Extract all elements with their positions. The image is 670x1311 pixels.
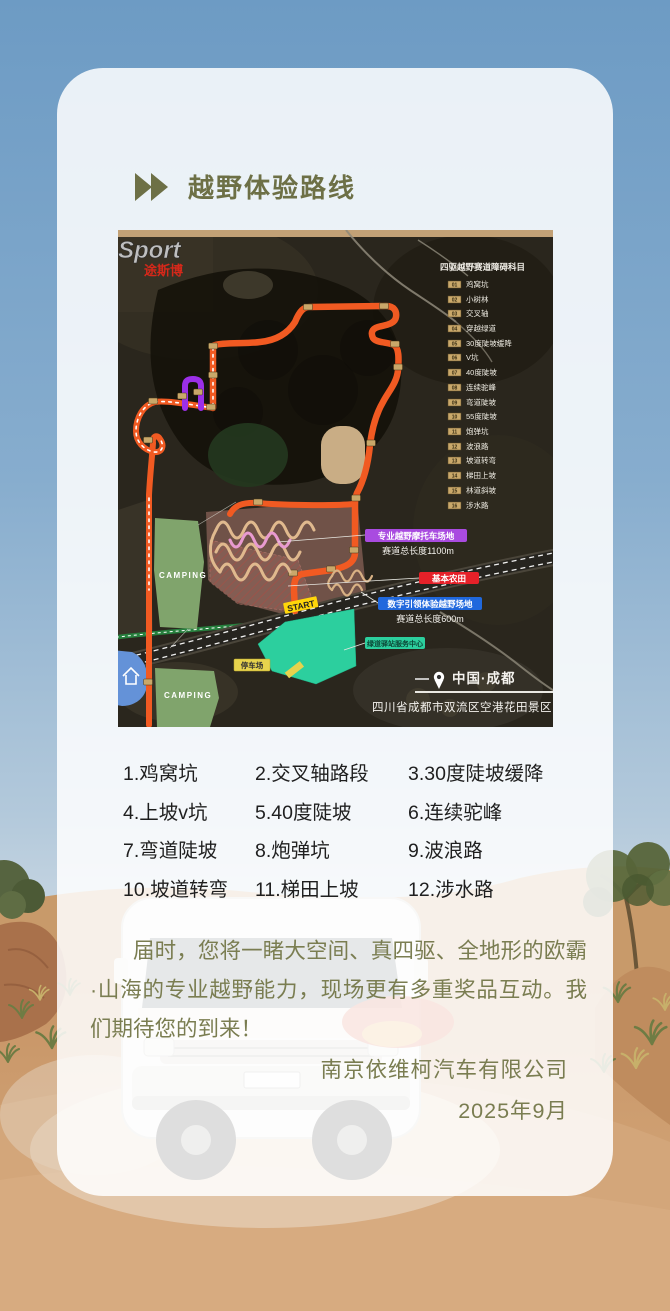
list-item: 2.交叉轴路段 — [255, 763, 408, 785]
svg-text:绿道驿站服务中心: 绿道驿站服务中心 — [367, 639, 423, 648]
svg-text:坡道转弯: 坡道转弯 — [466, 455, 496, 465]
list-item: 7.弯道陡坡 — [123, 840, 255, 862]
list-item: 1.鸡窝坑 — [123, 763, 255, 785]
svg-text:赛道总长度600m: 赛道总长度600m — [396, 613, 464, 624]
list-item: 12.涉水路 — [408, 879, 593, 901]
svg-text:涉水路: 涉水路 — [466, 500, 489, 510]
route-map: CAMPING CAMPING — [118, 230, 553, 727]
svg-text:14: 14 — [452, 474, 458, 480]
map-top-banner — [118, 230, 553, 237]
svg-text:40度陡坡: 40度陡坡 — [466, 367, 497, 377]
svg-text:12: 12 — [452, 445, 458, 451]
svg-text:02: 02 — [452, 298, 458, 304]
svg-text:06: 06 — [452, 356, 458, 362]
svg-text:V坑: V坑 — [466, 352, 479, 362]
svg-text:梯田上坡: 梯田上坡 — [466, 470, 496, 480]
svg-text:Sport: Sport — [118, 237, 182, 264]
list-item: 5.40度陡坡 — [255, 802, 408, 824]
closing-paragraph: 届时，您将一睹大空间、真四驱、全地形的欧霸·山海的专业越野能力，现场更有多重奖品… — [90, 932, 587, 1049]
svg-text:11: 11 — [452, 430, 458, 436]
svg-text:穿越绿道: 穿越绿道 — [466, 323, 496, 333]
svg-text:数字引领体验越野场地: 数字引领体验越野场地 — [387, 599, 473, 609]
svg-text:05: 05 — [452, 342, 458, 348]
obstacle-list: 1.鸡窝坑 2.交叉轴路段 3.30度陡坡缓降 4.上坡v坑 5.40度陡坡 6… — [123, 763, 593, 901]
svg-text:波浪路: 波浪路 — [466, 441, 489, 451]
camping-area-lower: CAMPING — [155, 668, 219, 727]
svg-text:弯道陡坡: 弯道陡坡 — [466, 397, 496, 407]
svg-text:赛道总长度1100m: 赛道总长度1100m — [382, 545, 454, 556]
svg-text:停车场: 停车场 — [241, 660, 264, 670]
svg-text:中国·成都: 中国·成都 — [452, 670, 516, 686]
svg-text:CAMPING: CAMPING — [159, 571, 207, 580]
svg-text:小树林: 小树林 — [466, 294, 489, 304]
svg-text:30度陡坡缓降: 30度陡坡缓降 — [466, 338, 512, 348]
list-item: 11.梯田上坡 — [255, 879, 408, 901]
svg-text:四川省成都市双流区空港花田景区: 四川省成都市双流区空港花田景区 — [372, 700, 552, 714]
content-card: 越野体验路线 — [57, 68, 613, 1196]
svg-text:09: 09 — [452, 401, 458, 407]
svg-text:55度陡坡: 55度陡坡 — [466, 411, 497, 421]
svg-text:途斯博: 途斯博 — [144, 263, 183, 278]
bare-field — [321, 426, 365, 484]
company-name: 南京依维柯汽车有限公司 — [320, 1053, 568, 1084]
label-parking: 停车场 — [234, 659, 270, 671]
svg-text:04: 04 — [452, 327, 458, 333]
svg-text:林道斜坡: 林道斜坡 — [466, 485, 496, 495]
list-item: 9.波浪路 — [408, 840, 593, 862]
list-item: 10.坡道转弯 — [123, 879, 255, 901]
svg-text:13: 13 — [452, 459, 458, 465]
fast-forward-icon — [135, 172, 173, 202]
list-item: 6.连续驼峰 — [408, 802, 593, 824]
svg-text:连续驼峰: 连续驼峰 — [466, 382, 496, 392]
route-map-image: CAMPING CAMPING — [118, 230, 553, 727]
list-item: 3.30度陡坡缓降 — [408, 763, 593, 785]
svg-text:鸡窝坑: 鸡窝坑 — [466, 279, 489, 289]
svg-text:10: 10 — [452, 415, 458, 421]
svg-text:专业越野摩托车场地: 专业越野摩托车场地 — [378, 531, 455, 541]
list-item: 4.上坡v坑 — [123, 802, 255, 824]
list-item: 8.炮弹坑 — [255, 840, 408, 862]
svg-text:08: 08 — [452, 386, 458, 392]
svg-text:炮弹坑: 炮弹坑 — [466, 426, 489, 436]
svg-text:基本农田: 基本农田 — [431, 574, 466, 584]
date-line: 2025年9月 — [458, 1094, 568, 1125]
svg-text:四驱越野赛道障碍科目: 四驱越野赛道障碍科目 — [440, 262, 525, 272]
section-title: 越野体验路线 — [135, 168, 356, 205]
svg-text:15: 15 — [452, 489, 458, 495]
svg-text:01: 01 — [452, 283, 458, 289]
page-title: 越野体验路线 — [188, 168, 356, 205]
svg-text:交叉轴: 交叉轴 — [466, 308, 489, 318]
svg-text:03: 03 — [452, 312, 458, 318]
svg-text:07: 07 — [452, 371, 458, 377]
svg-text:16: 16 — [452, 504, 458, 510]
svg-text:CAMPING: CAMPING — [164, 691, 212, 700]
promo-poster: { "title": { "label": "越野体验路线" }, "map":… — [0, 0, 670, 1311]
